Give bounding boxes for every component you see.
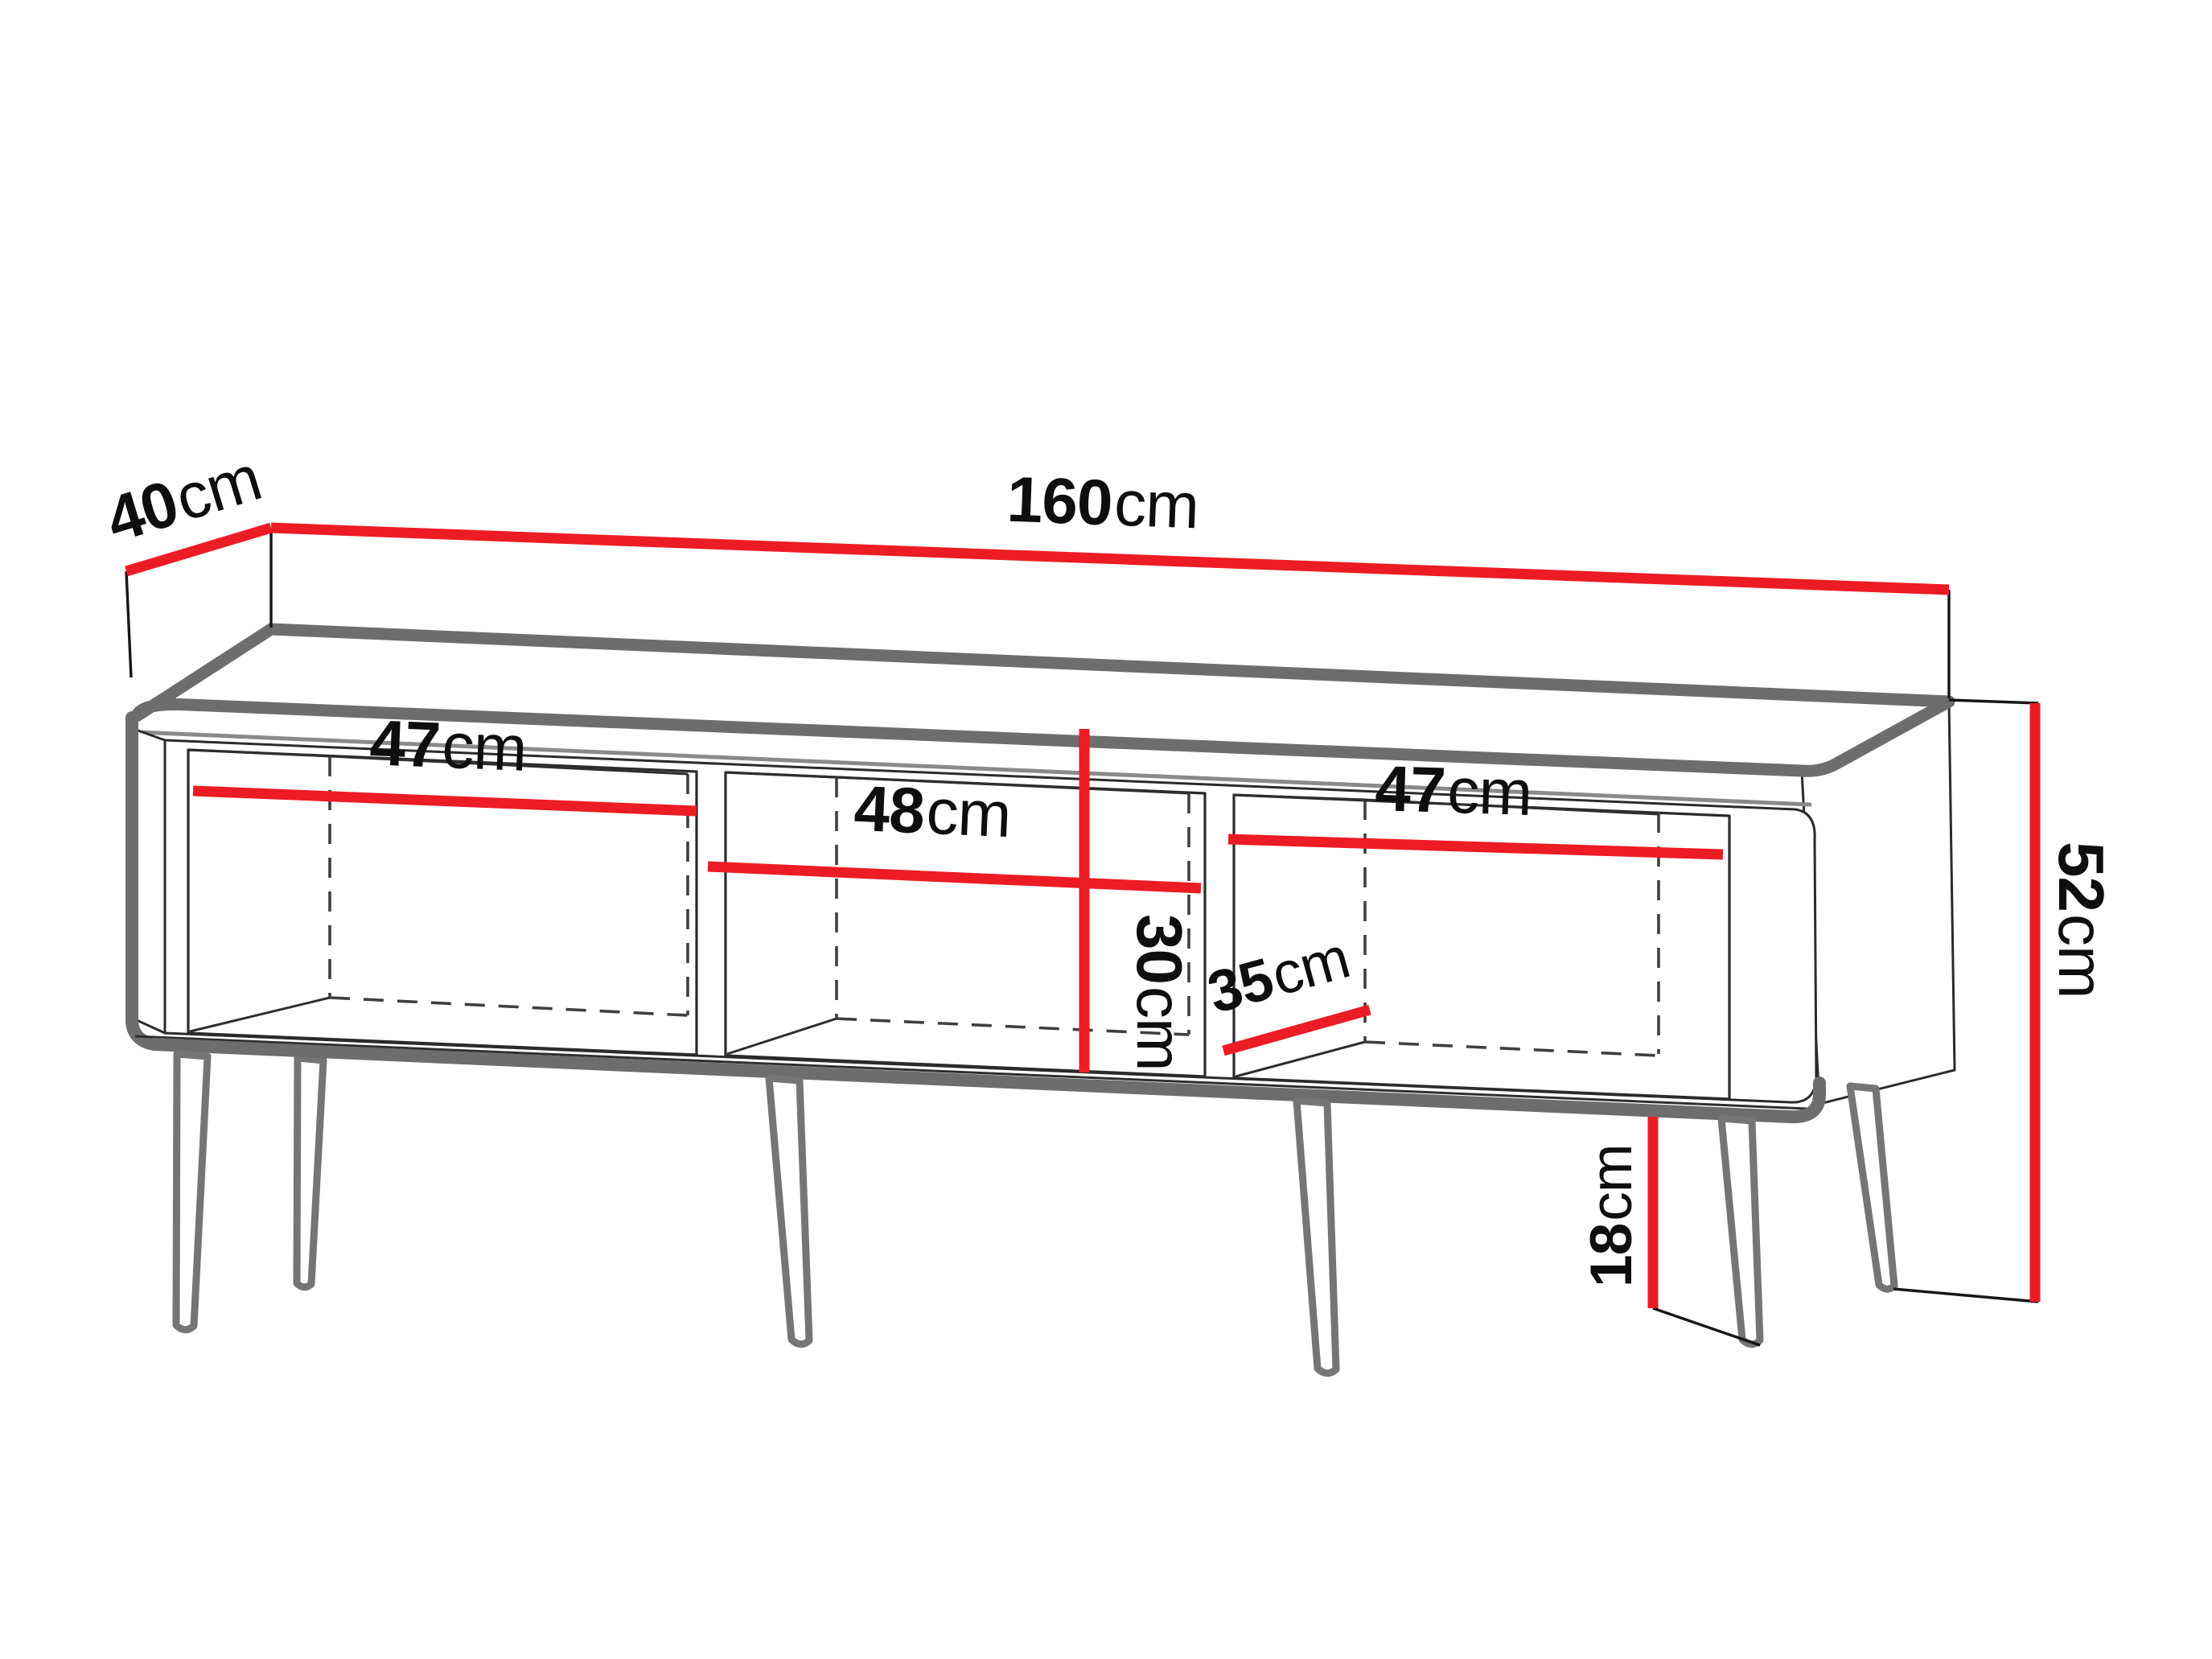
leg-back-right bbox=[1850, 1086, 1894, 1289]
furniture-dimension-diagram: 40cm 160cm 47cm 48cm 30cm 47cm bbox=[0, 0, 2212, 1659]
leg-front-middle-right bbox=[1297, 1101, 1336, 1373]
leg-front-left bbox=[176, 1054, 208, 1330]
leg-back-left bbox=[297, 1058, 323, 1287]
extension-line bbox=[1893, 1289, 2038, 1302]
dim-label-18cm: 18cm bbox=[1579, 1144, 1644, 1287]
dim-label-48cm: 48cm bbox=[853, 772, 1012, 850]
dim-label-47cm-left: 47cm bbox=[368, 706, 528, 784]
leg-front-right bbox=[1721, 1118, 1760, 1344]
diagram-page: 40cm 160cm 47cm 48cm 30cm 47cm bbox=[0, 0, 2212, 1659]
dim-label-30cm: 30cm bbox=[1124, 914, 1195, 1071]
dim-label-52cm: 52cm bbox=[2045, 842, 2117, 998]
dim-label-47cm-right: 47cm bbox=[1374, 752, 1532, 829]
extension-line bbox=[126, 571, 131, 677]
leg-front-middle-left bbox=[769, 1078, 809, 1344]
extension-line bbox=[1949, 700, 2038, 703]
dim-label-160cm: 160cm bbox=[1005, 463, 1199, 542]
